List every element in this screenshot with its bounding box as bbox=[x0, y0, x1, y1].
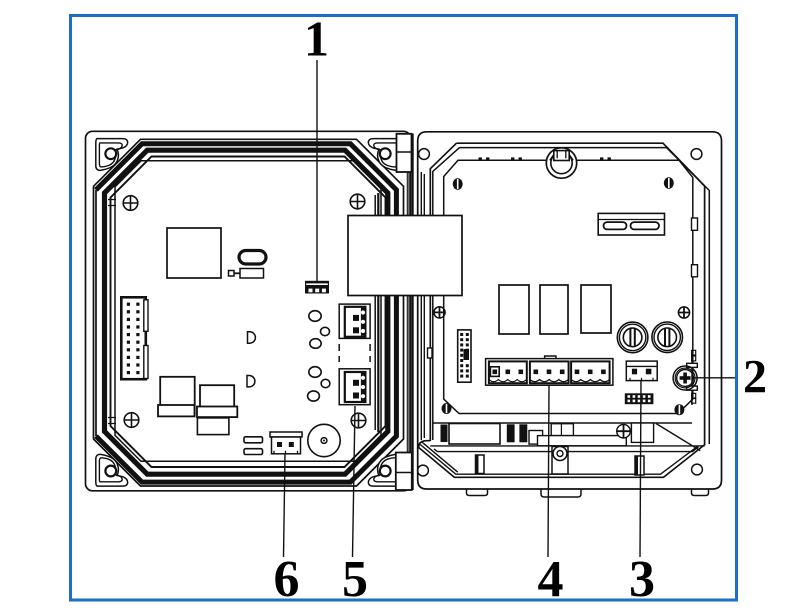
svg-text:2: 2 bbox=[743, 351, 767, 404]
svg-text:5: 5 bbox=[342, 551, 368, 608]
svg-text:4: 4 bbox=[538, 551, 564, 608]
svg-text:1: 1 bbox=[304, 10, 329, 66]
svg-text:3: 3 bbox=[629, 551, 655, 608]
svg-text:6: 6 bbox=[274, 551, 300, 608]
